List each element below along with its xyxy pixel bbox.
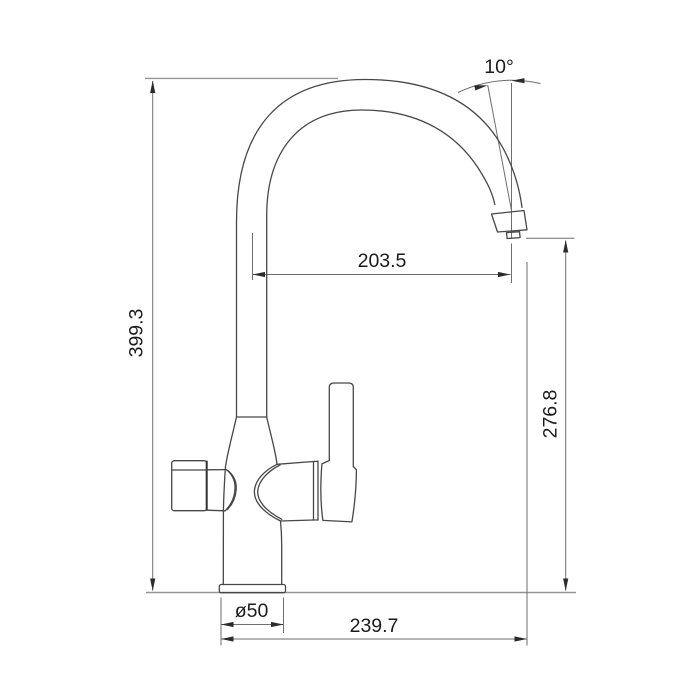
dim-outlet-height: 276.8: [540, 240, 569, 591]
aerator-nozzle: [507, 232, 521, 239]
arrowhead: [221, 636, 234, 641]
body-left-profile: [223, 417, 236, 585]
arrowhead: [512, 78, 525, 83]
arrowhead: [253, 272, 266, 277]
arrowhead: [474, 85, 487, 90]
arrowhead: [271, 622, 284, 627]
knob-neck-bottom: [207, 510, 225, 511]
spout-outer-curve: [237, 80, 523, 418]
dim-label-base-diameter: ø50: [235, 600, 269, 622]
faucet-outline: [172, 80, 527, 593]
dim-label-outlet-height: 276.8: [540, 390, 562, 439]
dim-label-overall-reach: 239.7: [350, 615, 399, 637]
dim-outlet-angle: 10°: [458, 56, 541, 211]
arrowhead: [150, 579, 155, 592]
filter-knob: [172, 461, 207, 511]
angle-arc: [458, 80, 541, 92]
dim-base-diameter: ø50: [221, 600, 284, 627]
base-plate: [219, 585, 285, 593]
body-left-contour: [225, 470, 235, 512]
extension-lines: [145, 78, 576, 645]
arrowhead: [221, 622, 234, 627]
arrowhead: [498, 272, 511, 277]
aerator: [492, 211, 528, 233]
drawing-canvas: 399.3 203.5 276.8 239.7 ø50 10°: [0, 0, 700, 700]
dim-spout-reach: 203.5: [253, 250, 511, 277]
dim-label-spout-reach: 203.5: [358, 250, 407, 272]
arrowhead: [563, 240, 568, 253]
dim-label-total-height: 399.3: [126, 309, 148, 358]
dim-label-outlet-angle: 10°: [484, 56, 514, 78]
handle-lever: [329, 383, 353, 467]
arrowhead: [150, 81, 155, 94]
dim-total-height: 399.3: [126, 81, 156, 592]
body-right-lower-profile: [281, 521, 282, 585]
body-center-contour-inner: [258, 465, 282, 519]
body-right-flare: [267, 417, 277, 464]
arrowhead: [515, 636, 528, 641]
faucet-dimension-drawing: 399.3 203.5 276.8 239.7 ø50 10°: [0, 0, 700, 700]
handle-base: [321, 461, 357, 522]
boss-top-edge: [277, 461, 318, 464]
boss-bottom-edge: [281, 520, 314, 521]
arrowhead: [563, 579, 568, 592]
